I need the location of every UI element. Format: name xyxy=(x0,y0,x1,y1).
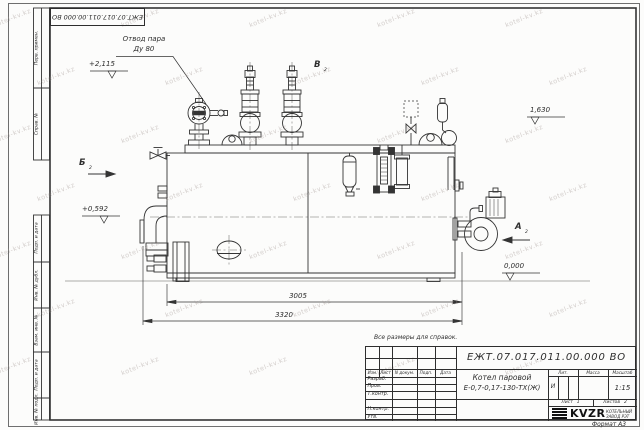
elevation-marks xyxy=(82,71,565,280)
sheet-label: Лист xyxy=(561,401,572,406)
titleblock-doc-number: ЕЖТ.07.017.011.00.000 ВО xyxy=(456,353,637,363)
company-logo-text: KVZR xyxy=(570,408,605,419)
titleblock-line xyxy=(548,376,637,377)
sheets-value: 2 xyxy=(624,401,627,406)
left-burner-duct xyxy=(140,148,170,273)
top-stamp-box: ЕЖТ.07.017.011.00.000 ВО xyxy=(50,8,145,26)
rear-flue xyxy=(448,157,463,191)
company-name-line2: ЗАВОД РЭТ xyxy=(606,415,629,419)
titleblock-line xyxy=(366,414,456,415)
titleblock-col-data: Дата xyxy=(435,371,456,375)
title-block: Изм. Лист N докум. Подп. Дата Разраб. Пр… xyxy=(365,346,636,420)
sheets-cell: Листов2 xyxy=(593,401,637,406)
dimensions xyxy=(143,246,462,325)
sheets-label: Листов xyxy=(603,401,620,406)
kvzr-logo xyxy=(552,408,567,419)
view-arrows xyxy=(88,171,530,243)
drawing-sheet: kotel-kv.kzkotel-kv.kzkotel-kv.kzkotel-k… xyxy=(0,0,644,430)
lifting-lugs xyxy=(222,134,442,146)
titleblock-col-podp: Подп. xyxy=(417,371,435,375)
lit-header: Лит. xyxy=(548,371,578,375)
sheet-value: 1 xyxy=(577,401,580,406)
future-fitting xyxy=(404,101,418,145)
product-name-line2: Е-0,7-0,17-130-ТХ(Ж) xyxy=(456,385,548,392)
titleblock-col-izm: Изм. xyxy=(366,371,379,375)
titleblock-col-ndokum: N докум. xyxy=(392,371,417,375)
titleblock-line xyxy=(568,376,569,399)
company-name-line1: КОТЕЛЬНЫЙ xyxy=(606,410,632,414)
product-name-line1: Котел паровой xyxy=(456,374,548,382)
burner-unit xyxy=(453,188,505,251)
titleblock-line xyxy=(366,358,456,359)
boiler-shell xyxy=(167,145,455,282)
scale-header: Масштаб xyxy=(608,371,637,375)
titleblock-line xyxy=(558,376,559,399)
titleblock-row-nkontr: Н.контр. xyxy=(368,408,389,413)
top-stamp-number: ЕЖТ.07.017.011.00.000 ВО xyxy=(52,13,143,21)
titleblock-row-tkontr: Т.контр. xyxy=(368,393,389,398)
titleblock-row-utv: Утв. xyxy=(368,416,378,421)
titleblock-col-list: Лист xyxy=(379,371,392,375)
sheet-cell: Лист1 xyxy=(548,401,593,406)
steam-outlet-leader xyxy=(116,57,206,105)
steam-outlet-valve xyxy=(188,99,228,146)
scale-value: 1:15 xyxy=(608,385,637,392)
titleblock-row-prov: Пров. xyxy=(368,385,382,390)
titleblock-row-razrab: Разраб. xyxy=(368,378,387,383)
lit-value: И xyxy=(548,384,558,390)
mass-header: Масса xyxy=(578,371,608,375)
